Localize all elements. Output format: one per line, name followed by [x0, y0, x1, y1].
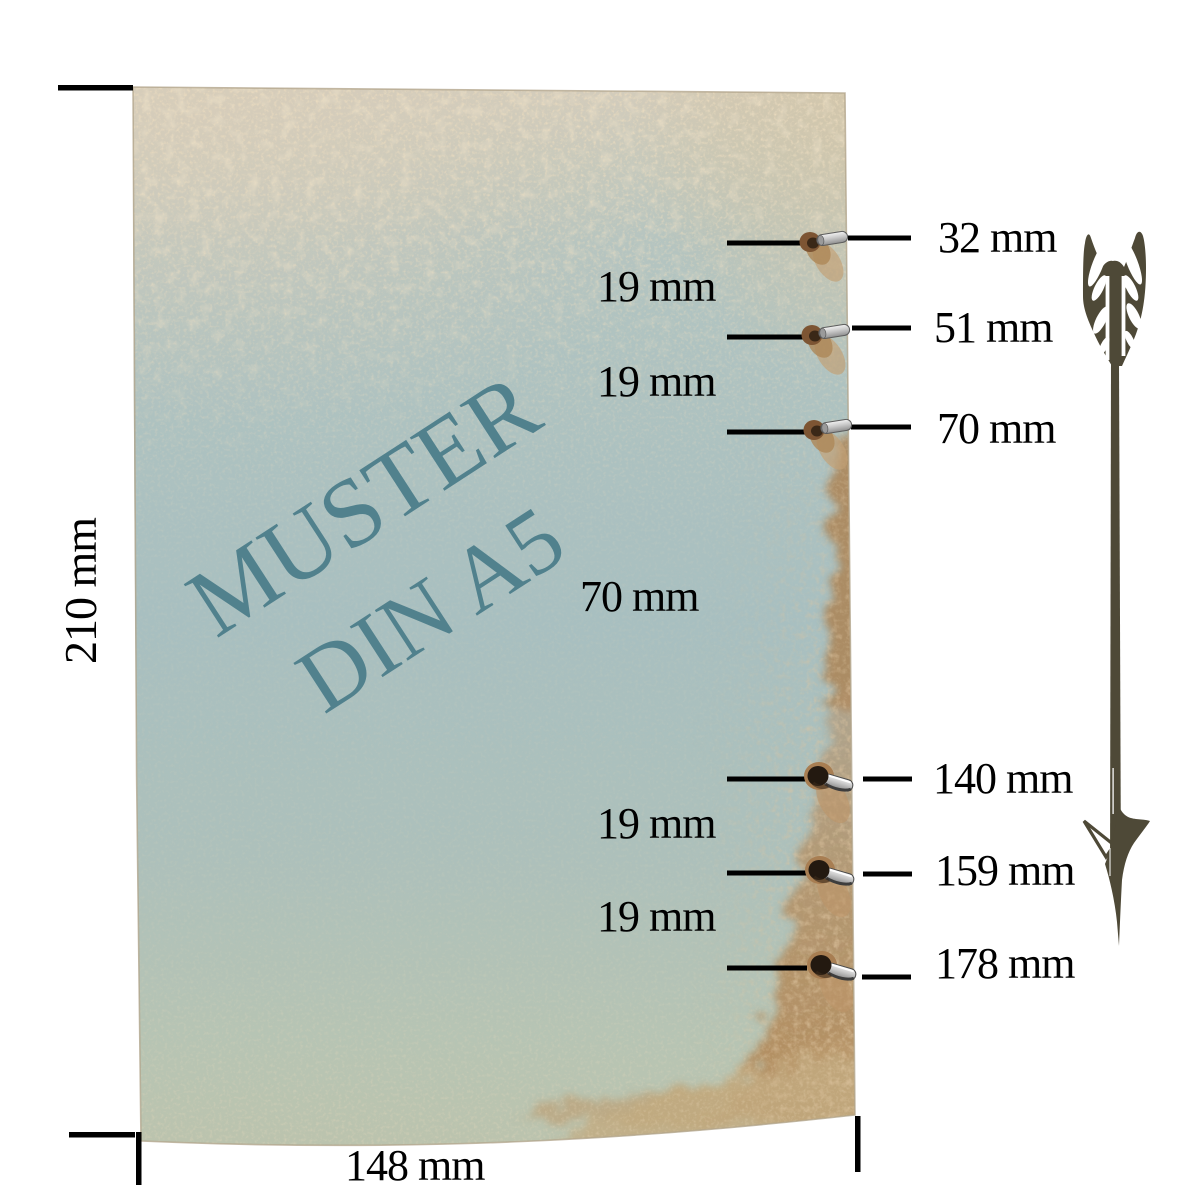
svg-text:19 mm: 19 mm — [597, 357, 716, 406]
svg-text:70 mm: 70 mm — [580, 572, 699, 621]
svg-text:32 mm: 32 mm — [938, 213, 1057, 262]
svg-text:51 mm: 51 mm — [934, 303, 1053, 352]
svg-text:210 mm: 210 mm — [55, 517, 106, 664]
svg-text:70 mm: 70 mm — [937, 404, 1056, 453]
svg-text:19 mm: 19 mm — [597, 799, 716, 848]
svg-text:19 mm: 19 mm — [597, 262, 716, 311]
svg-text:159 mm: 159 mm — [935, 846, 1075, 895]
svg-text:19 mm: 19 mm — [597, 892, 716, 941]
svg-text:178 mm: 178 mm — [935, 939, 1075, 988]
svg-text:148 mm: 148 mm — [345, 1141, 485, 1190]
svg-text:140 mm: 140 mm — [933, 754, 1073, 803]
